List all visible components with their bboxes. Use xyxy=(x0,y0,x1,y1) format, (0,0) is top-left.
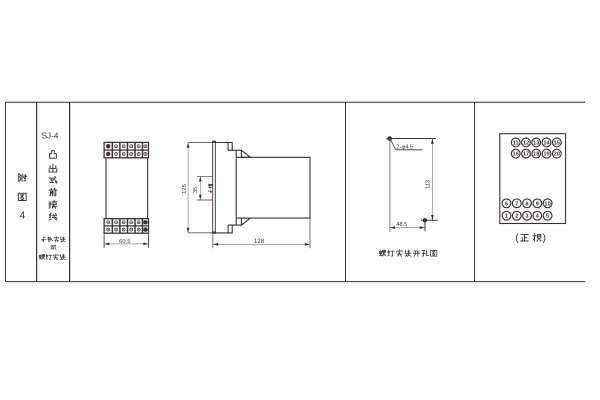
svg-text:1: 1 xyxy=(505,214,508,220)
svg-text:20: 20 xyxy=(554,152,560,158)
svg-text:3: 3 xyxy=(525,214,528,220)
svg-text:15: 15 xyxy=(554,140,560,146)
svg-text:9: 9 xyxy=(536,201,539,207)
svg-text:10: 10 xyxy=(544,201,550,207)
svg-text:35: 35 xyxy=(193,187,199,193)
svg-text:113: 113 xyxy=(426,180,432,189)
svg-text:14: 14 xyxy=(543,140,550,146)
svg-text:12: 12 xyxy=(523,140,529,146)
svg-text:2-φ4.5: 2-φ4.5 xyxy=(396,145,413,151)
svg-text:5: 5 xyxy=(546,214,549,220)
svg-text:11: 11 xyxy=(513,140,519,146)
svg-text:19: 19 xyxy=(543,152,549,158)
svg-text:7: 7 xyxy=(515,201,518,207)
svg-text:125: 125 xyxy=(182,184,188,194)
svg-text:60.5: 60.5 xyxy=(119,239,130,245)
svg-text:48.5: 48.5 xyxy=(396,222,407,228)
svg-text:18: 18 xyxy=(533,152,539,158)
svg-text:128: 128 xyxy=(254,238,265,245)
svg-text:17: 17 xyxy=(523,152,529,158)
svg-text:8: 8 xyxy=(525,201,528,207)
svg-text:): ) xyxy=(543,232,547,244)
svg-text:4: 4 xyxy=(20,211,26,222)
svg-text:6: 6 xyxy=(505,201,508,207)
svg-text:16: 16 xyxy=(513,152,519,158)
svg-text:2: 2 xyxy=(515,214,518,220)
svg-text:13: 13 xyxy=(533,140,539,146)
svg-text:SJ-4: SJ-4 xyxy=(42,131,59,140)
svg-text:(: ( xyxy=(515,232,519,244)
